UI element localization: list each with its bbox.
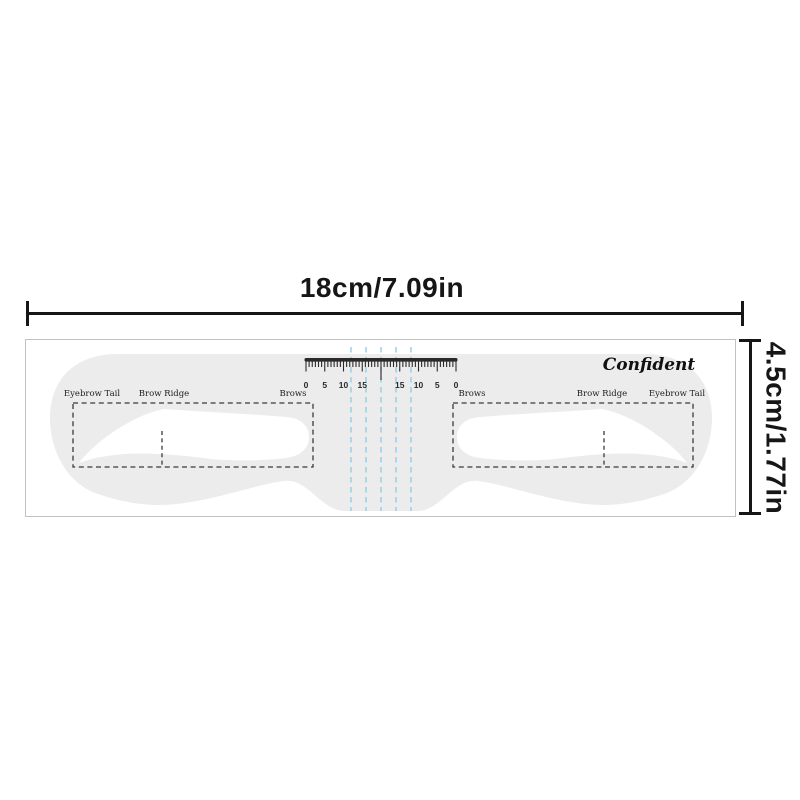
ruler-number: 10 [339,380,349,390]
label-left-brow-ridge: Brow Ridge [139,390,189,399]
width-dimension-cap-left [26,301,29,326]
product-image: 18cm/7.09in 4.5cm/1.77in 05101515105 [0,0,800,800]
brand-logo-text: Confident [603,356,696,375]
ruler-number: 5 [322,380,327,390]
stencil-sheet: 051015151050 Eyebrow Tail Brow Ridge Bro… [25,339,736,517]
label-left-eyebrow-tail: Eyebrow Tail [64,390,120,399]
ruler-number: 10 [414,380,424,390]
ruler-number: 5 [435,380,440,390]
ruler-number: 15 [358,380,368,390]
height-dimension-label: 4.5cm/1.77in [761,342,790,515]
label-right-brows: Brows [458,390,485,399]
width-dimension-label: 18cm/7.09in [300,273,464,302]
width-dimension-cap-right [741,301,744,326]
height-dimension-cap-top [739,339,761,342]
label-right-eyebrow-tail: Eyebrow Tail [649,390,705,399]
label-left-brows: Brows [279,390,306,399]
ruler-number: 15 [395,380,405,390]
height-dimension-cap-bottom [739,512,761,515]
width-dimension-line [27,312,743,315]
height-dimension-line [749,340,752,514]
label-right-brow-ridge: Brow Ridge [577,390,627,399]
